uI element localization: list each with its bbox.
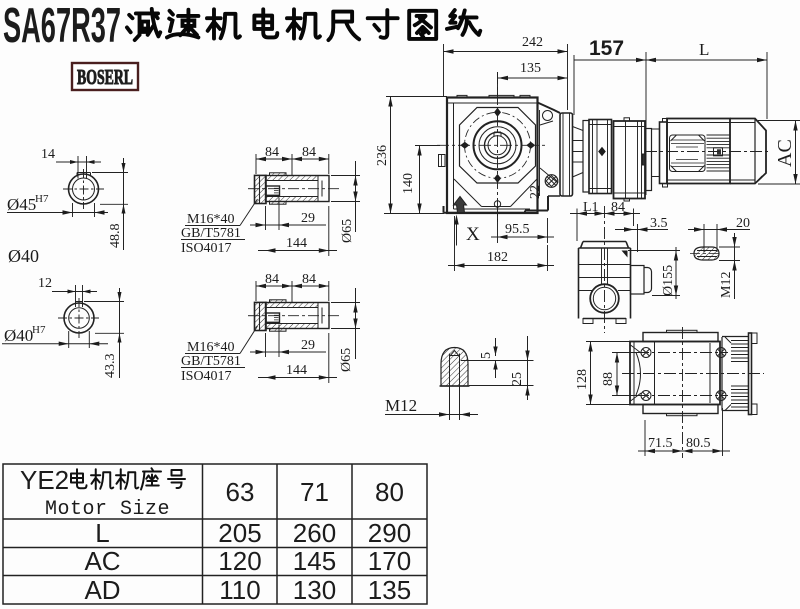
svg-text:12: 12 (38, 276, 52, 291)
svg-text:205: 205 (218, 518, 261, 548)
svg-text:182: 182 (487, 250, 508, 265)
svg-text:130: 130 (293, 575, 336, 605)
svg-text:43.3: 43.3 (103, 354, 118, 379)
svg-text:ISO4017: ISO4017 (181, 241, 232, 256)
svg-text:M16*40: M16*40 (187, 212, 234, 227)
svg-text:95.5: 95.5 (505, 222, 530, 237)
svg-text:84: 84 (302, 145, 316, 160)
svg-text:29: 29 (301, 338, 315, 353)
svg-text:144: 144 (286, 236, 307, 251)
svg-text:71.5: 71.5 (648, 436, 673, 451)
svg-text:Ø65: Ø65 (339, 348, 354, 372)
svg-text:ISO4017: ISO4017 (181, 369, 232, 384)
svg-text:84: 84 (302, 272, 316, 287)
svg-text:M12: M12 (719, 272, 734, 298)
svg-text:88: 88 (601, 372, 616, 386)
svg-text:120: 120 (218, 546, 261, 576)
svg-text:L: L (95, 518, 109, 548)
svg-text:48.8: 48.8 (108, 224, 123, 249)
svg-text:GB/T5781: GB/T5781 (181, 226, 241, 241)
svg-text:25: 25 (510, 372, 525, 386)
svg-text:242: 242 (522, 35, 543, 50)
svg-text:157: 157 (589, 37, 624, 60)
svg-text:170: 170 (368, 546, 411, 576)
svg-text:22: 22 (528, 185, 543, 199)
svg-text:3.5: 3.5 (650, 216, 668, 231)
svg-text:29: 29 (301, 211, 315, 226)
svg-text:84: 84 (265, 272, 279, 287)
svg-text:128: 128 (575, 369, 590, 390)
svg-text:260: 260 (293, 518, 336, 548)
svg-text:YE2: YE2 (20, 465, 69, 495)
svg-text:M16*40: M16*40 (187, 340, 234, 355)
svg-text:84: 84 (611, 200, 625, 215)
svg-text:Ø65: Ø65 (340, 219, 355, 243)
svg-text:H7: H7 (32, 324, 46, 336)
svg-text:236: 236 (375, 145, 390, 166)
svg-text:110: 110 (219, 575, 260, 605)
svg-text:84: 84 (265, 145, 279, 160)
svg-text:63: 63 (226, 477, 255, 507)
svg-text:80: 80 (375, 477, 404, 507)
svg-text:80.5: 80.5 (686, 436, 711, 451)
svg-text:14: 14 (41, 147, 55, 162)
svg-text:AD: AD (84, 575, 120, 605)
svg-text:Ø155: Ø155 (661, 265, 676, 296)
svg-text:144: 144 (286, 363, 307, 378)
svg-text:145: 145 (293, 546, 336, 576)
svg-text:L1: L1 (583, 200, 599, 215)
svg-text:20: 20 (736, 216, 750, 231)
svg-text:135: 135 (520, 61, 541, 76)
svg-text:Ø40: Ø40 (8, 246, 39, 266)
svg-text:5: 5 (479, 352, 494, 359)
svg-text:L: L (699, 40, 709, 59)
svg-text:135: 135 (368, 575, 411, 605)
svg-text:GB/T5781: GB/T5781 (181, 354, 241, 369)
svg-text:SA67R37: SA67R37 (3, 0, 121, 53)
svg-text:Ø40: Ø40 (4, 326, 33, 345)
svg-text:X: X (466, 224, 480, 245)
svg-text:BOSERL: BOSERL (77, 65, 133, 89)
svg-text:H7: H7 (35, 193, 49, 205)
svg-text:AC: AC (84, 546, 120, 576)
svg-text:AC: AC (774, 139, 796, 167)
svg-text:Ø45: Ø45 (7, 195, 36, 214)
svg-text:M12: M12 (385, 396, 417, 415)
svg-text:290: 290 (368, 518, 411, 548)
svg-text:71: 71 (300, 477, 329, 507)
svg-text:140: 140 (401, 173, 416, 194)
